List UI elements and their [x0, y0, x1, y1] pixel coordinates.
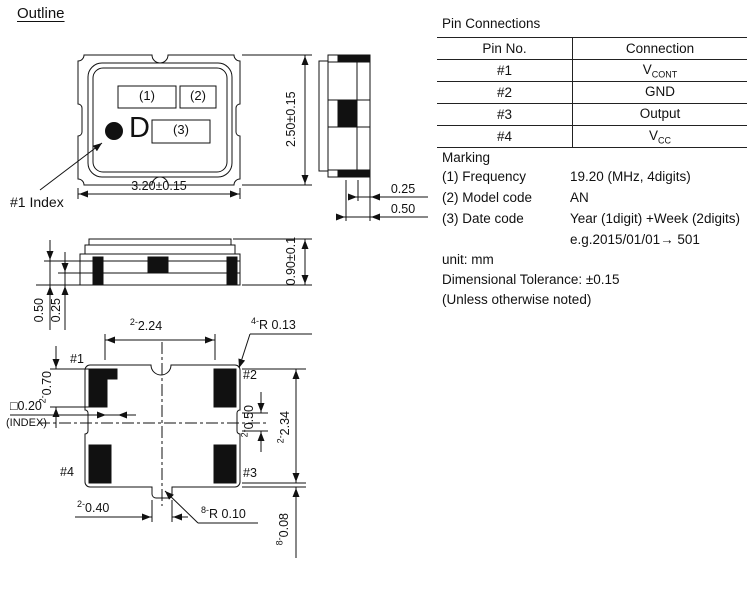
- marking-box-3-label: (3): [152, 123, 210, 138]
- dim-front-height: 0.90±0.1: [284, 226, 298, 296]
- side-view-body: [319, 55, 370, 177]
- electrode-center: [148, 257, 168, 273]
- electrode-right: [227, 257, 237, 285]
- note-unit: unit: mm: [442, 252, 494, 267]
- col-header-pin: Pin No.: [437, 38, 573, 60]
- electrode-left: [93, 257, 103, 285]
- table-header-row: Pin No. Connection: [437, 38, 747, 60]
- dim-side-large: 0.50: [384, 202, 422, 216]
- pin-connection: Output: [573, 104, 748, 126]
- index-leader-arrow: [40, 143, 102, 190]
- pad-1-label: #1: [70, 352, 84, 366]
- dim-notch-height: 2-0.50: [242, 386, 256, 456]
- page-title: Outline: [17, 5, 65, 22]
- pin-number: #2: [437, 82, 573, 104]
- marking-title: Marking: [442, 150, 490, 166]
- dim-pad-height: 2-0.70: [40, 352, 54, 422]
- marking-row-value: 19.20 (MHz, 4digits): [570, 169, 691, 184]
- table-row: #2 GND: [437, 82, 747, 104]
- pin-connections-table: Pin No. Connection #1 VCONT #2 GND #3 Ou…: [437, 37, 747, 148]
- table-row: #1 VCONT: [437, 60, 747, 82]
- dim-body-height: 2.50±0.15: [284, 84, 298, 154]
- pin1-index-label: #1 Index: [10, 194, 64, 210]
- marking-box-2-label: (2): [180, 89, 216, 104]
- pin1-index-dot: [106, 123, 123, 140]
- pad-1: [89, 369, 117, 407]
- dim-slot-width: 2-0.40: [77, 501, 109, 515]
- outline-drawing-page: Outline (1) (2) (3) D #1 Index 3.20±0.15…: [0, 0, 755, 591]
- pad-2-label: #2: [243, 368, 257, 382]
- dim-side-small: 0.25: [384, 182, 422, 196]
- marking-row-label: (1) Frequency: [442, 169, 526, 184]
- bottom-view-body: [38, 342, 268, 506]
- col-header-connection: Connection: [573, 38, 748, 60]
- dim-pad-span: 2-2.34: [278, 392, 292, 462]
- pin-number: #3: [437, 104, 573, 126]
- marking-row-value: e.g.2015/01/01→ 501: [570, 232, 700, 247]
- marking-box-1-label: (1): [118, 89, 176, 104]
- bottom-view-dimensions: [10, 334, 312, 558]
- dim-notch-radius: 8-R 0.10: [201, 507, 246, 521]
- pin-connections-title: Pin Connections: [442, 16, 540, 32]
- dim-corner-radius: 4-R 0.13: [251, 318, 296, 332]
- pad-3-label: #3: [243, 466, 257, 480]
- dim-front-large: 0.50: [32, 280, 46, 340]
- marking-row-value: AN: [570, 190, 589, 205]
- pad-3: [214, 445, 236, 483]
- front-view-body: [80, 239, 240, 285]
- pad-4: [89, 445, 111, 483]
- marking-row-value: Year (1digit) +Week (2digits): [570, 211, 740, 226]
- pad-2: [214, 369, 236, 407]
- note-unless: (Unless otherwise noted): [442, 292, 591, 307]
- dim-front-small: 0.25: [49, 280, 63, 340]
- note-tolerance: Dimensional Tolerance: ±0.15: [442, 272, 620, 287]
- pin-connection: VCONT: [573, 60, 748, 82]
- table-row: #3 Output: [437, 104, 747, 126]
- pin-number: #1: [437, 60, 573, 82]
- pin-connection: VCC: [573, 126, 748, 148]
- dim-pad-inset: 8-0.08: [277, 494, 291, 564]
- table-row: #4 VCC: [437, 126, 747, 148]
- marking-row-label: (2) Model code: [442, 190, 532, 205]
- pin-number: #4: [437, 126, 573, 148]
- electrode-top: [338, 55, 370, 62]
- marking-row-label: (3) Date code: [442, 211, 524, 226]
- dim-body-width: 3.20±0.15: [109, 179, 209, 193]
- pin-connection: GND: [573, 82, 748, 104]
- dim-top-width: 2-2.24: [116, 319, 176, 333]
- model-letter: D: [129, 112, 150, 145]
- pad-4-label: #4: [60, 465, 74, 479]
- electrode-mid: [338, 100, 357, 127]
- electrode-bottom: [338, 170, 370, 177]
